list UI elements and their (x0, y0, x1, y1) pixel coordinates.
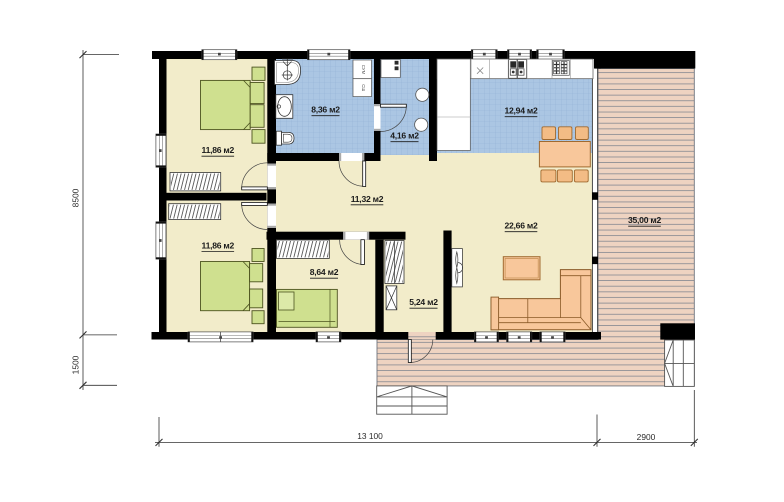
svg-text:11,32 м2: 11,32 м2 (351, 194, 384, 204)
svg-text:4,16 м2: 4,16 м2 (390, 131, 419, 141)
svg-text:11,86 м2: 11,86 м2 (202, 145, 235, 155)
svg-text:12,94 м2: 12,94 м2 (504, 106, 538, 116)
svg-text:13 100: 13 100 (357, 431, 383, 441)
svg-text:СШ: СШ (361, 84, 366, 91)
svg-text:8,64 м2: 8,64 м2 (310, 267, 339, 277)
svg-text:22,66 м2: 22,66 м2 (504, 221, 538, 231)
svg-text:СУМ: СУМ (361, 65, 366, 75)
svg-text:8,36 м2: 8,36 м2 (311, 105, 340, 115)
svg-text:1500: 1500 (71, 355, 81, 374)
svg-text:11,86 м2: 11,86 м2 (202, 241, 235, 251)
svg-text:5,24 м2: 5,24 м2 (409, 297, 438, 307)
svg-text:8500: 8500 (71, 188, 81, 207)
svg-text:35,00 м2: 35,00 м2 (628, 215, 662, 225)
svg-text:2900: 2900 (637, 432, 656, 442)
